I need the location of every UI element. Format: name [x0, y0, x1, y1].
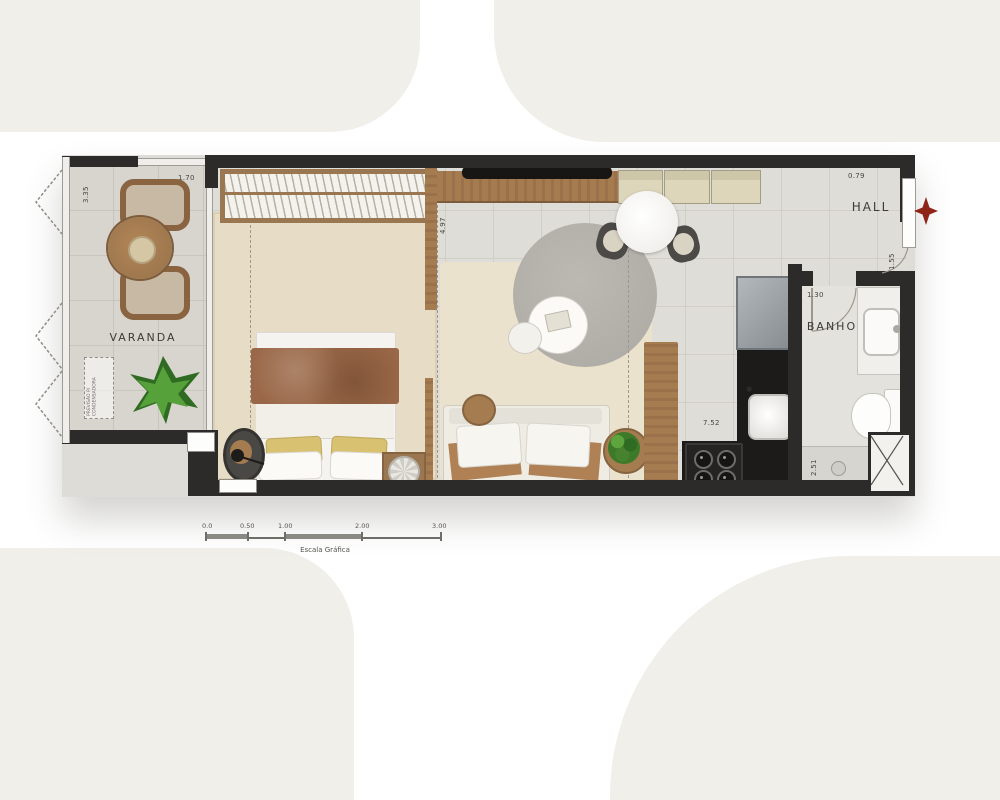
varanda-table-bowl [128, 236, 156, 264]
scale-end-left [205, 532, 207, 541]
sofa-cushion-left [456, 422, 523, 468]
scale-tick-1: 0.50 [240, 522, 254, 530]
plant-living [608, 432, 640, 464]
scale-tick-4: 3.00 [432, 522, 446, 530]
dim-unit-width: 7.52 [703, 419, 720, 427]
dim-hall-depth: 1.55 [888, 242, 896, 270]
shower-drain [831, 461, 846, 476]
varanda-sliding-door [206, 188, 213, 430]
basket-2 [664, 170, 710, 204]
scale-segment-1 [205, 534, 247, 539]
wall-bedroom-stub [205, 168, 218, 188]
floor-plan-page: { "labels": { "varanda": "VARANDA", "hal… [0, 0, 1000, 800]
compass-north-icon [914, 197, 938, 225]
dim-banho-door: 1.30 [807, 291, 824, 299]
scale-end-b [284, 532, 286, 541]
wall-hall-banho-left [788, 271, 813, 286]
coffee-stool [508, 322, 542, 354]
room-label-banho: BANHO [798, 320, 866, 333]
dim-banho-depth: 2.51 [810, 448, 818, 476]
wall-top-varanda [62, 156, 138, 167]
shaft-box [868, 432, 912, 494]
wardrobe [220, 169, 436, 223]
dim-varanda-height: 3.35 [82, 173, 90, 203]
dim-room-height: 4.97 [439, 204, 447, 234]
bedroom-side-panel [425, 378, 433, 480]
sofa-side-table [462, 394, 496, 426]
bed-sheet [256, 404, 394, 439]
varanda-left-glass [62, 157, 70, 443]
wall-kitchen-banho [788, 264, 802, 496]
divider-bedroom-living [437, 170, 438, 478]
kitchen-island [644, 342, 678, 488]
sofa-cushion-right [525, 422, 591, 467]
facade-chevron-bottom [36, 371, 62, 437]
wall-varanda-bottom [62, 430, 193, 444]
scale-segment-2 [284, 534, 361, 539]
wall-tag-2 [219, 479, 257, 493]
bed-blanket [251, 348, 399, 404]
wall-hall-banho-right [856, 271, 915, 286]
scale-tick-0: 0.0 [202, 522, 212, 530]
bg-blob-bottom-right [610, 556, 1000, 800]
dim-hall-width: 0.79 [848, 172, 865, 180]
scale-tick-3: 2.00 [355, 522, 369, 530]
stove-burner-2 [717, 450, 736, 469]
basket-3 [711, 170, 761, 204]
bg-blob-top-left [0, 0, 420, 132]
stove-burner-1 [694, 450, 713, 469]
dining-table [616, 191, 678, 253]
kitchen-sink [748, 394, 792, 440]
facade-chevron-top [36, 170, 62, 234]
bed-pillow-white-left [258, 451, 323, 481]
varanda-top-glass [138, 158, 205, 166]
scale-tick-2: 1.00 [278, 522, 292, 530]
scale-end-c [361, 532, 363, 541]
bg-blob-top-right [494, 0, 1000, 142]
wall-top [205, 155, 915, 168]
scale-caption: Escala Gráfica [200, 546, 450, 554]
wardrobe-divider [225, 192, 431, 195]
scale-end-a [247, 532, 249, 541]
room-label-varanda: VARANDA [100, 331, 186, 344]
facade-chevron-mid [36, 303, 62, 369]
bedside-lamp [231, 449, 244, 462]
wall-tag-1 [187, 432, 215, 452]
bg-blob-bottom-left [0, 548, 354, 800]
dim-varanda-width: 1.70 [178, 174, 195, 182]
condenser-note-text: PREVISÃO P/ CONDENSADORA [85, 358, 100, 418]
scale-end-right [440, 532, 442, 541]
room-label-hall: HALL [836, 200, 906, 214]
wall-bottom [188, 480, 915, 496]
tv-panel-side [425, 168, 437, 310]
condenser-note-box: PREVISÃO P/ CONDENSADORA [84, 357, 114, 419]
